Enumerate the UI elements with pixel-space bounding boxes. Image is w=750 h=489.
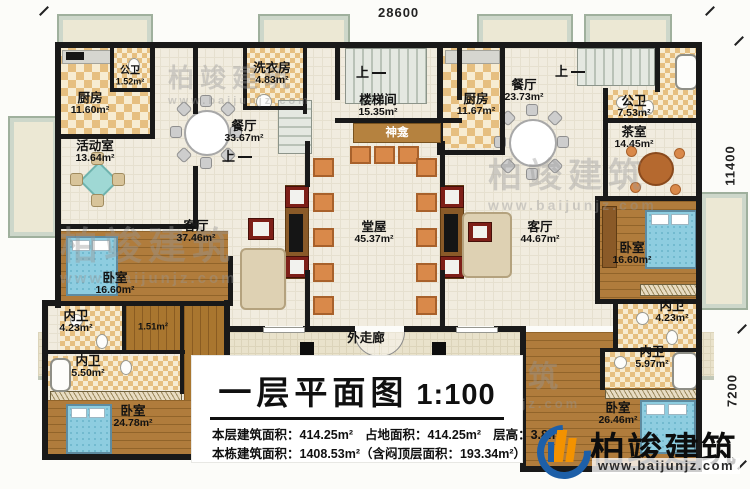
dimension-right-lower: 7200 [725,361,740,421]
altar-table [285,186,309,208]
room-label-activity: 活动室13.64m² [75,139,114,165]
hall-chair [416,193,437,212]
brand-logo: 柏竣建筑 www.baijunjz.com [536,416,748,480]
altar-table [440,186,464,208]
stairs-right [577,48,655,86]
wall [42,300,48,460]
room-label-main-hall: 堂屋45.37m² [354,220,393,246]
hall-chair [374,146,395,164]
wall [600,352,605,390]
activity-chair [112,173,125,186]
coffee-table [248,218,274,240]
room-label-bedroom-right-mid: 卧室16.60m² [612,241,651,267]
room-label-tea-room: 茶室14.45m² [614,125,653,151]
closet-hatch [605,389,697,399]
wall [335,42,340,100]
room-label-ensuite-right-upper: 内卫4.23m² [655,299,688,325]
room-label-ensuite-left-upper: 内卫4.23m² [59,309,92,335]
dimension-tick [734,36,744,46]
room-label-bath-public-right: 公卫7.53m² [617,94,650,120]
tea-stool [674,148,685,159]
wall [440,270,445,328]
plan-title-text: 一层平面图 [218,374,408,411]
plan-scale: 1:100 [416,379,495,411]
hall-chair [313,158,334,177]
wall [696,42,702,272]
bathtub [672,352,698,390]
wall [110,88,154,92]
sink [614,356,627,369]
plan-title: 一层平面图1:100 [210,366,503,420]
room-label-kitchen-left: 厨房11.60m² [71,91,110,117]
hall-chair [416,158,437,177]
wall [150,48,155,138]
room-label-bedroom-left-mid: 卧室16.60m² [95,271,134,297]
closet-hatch [640,284,698,296]
tea-stool [670,184,681,195]
plan-stats-line2: 本栋建筑面积：1408.53m²（含闷顶层面积：193.34m²） [212,445,522,464]
activity-chair [70,173,83,186]
dimension-top: 28600 [378,5,419,20]
room-label-closet-left: 1.51m² [138,323,168,334]
stairs-up-label: 上 [555,61,568,80]
room-label-kitchen-right: 厨房11.67m² [457,92,496,118]
bed [66,404,112,454]
stairs-up-label: 上 [356,62,369,81]
brand-logo-url: www.baijunjz.com [592,458,740,474]
floor-plan-page: 神龛 [0,0,750,489]
wall [595,201,600,301]
dimension-tick [737,324,747,334]
dining-chair [526,104,538,116]
room-label-dining-right: 餐厅23.73m² [504,78,543,104]
coffee-table [468,222,492,242]
glass-door [456,327,498,333]
dimension-tick [39,6,49,16]
room-label-shrine: 神龛 [354,124,440,142]
bathtub [50,358,71,392]
dimension-right-upper: 11400 [723,136,738,196]
toilet [96,334,108,349]
toilet [120,360,132,375]
room-label-ensuite-left-lower: 内卫5.50m² [71,354,104,380]
hall-chair [416,296,437,315]
hall-chair [350,146,371,164]
room-label-living-right: 客厅44.67m² [520,220,559,246]
dining-chair [557,136,569,148]
room-label-bedroom-left-bottom: 卧室24.78m² [113,404,152,430]
room-label-corridor: 外走廊 [347,331,385,345]
watermark: 柏竣建筑 www.baijunjz.com [488,148,657,213]
hall-chair [416,228,437,247]
bathtub [675,54,698,90]
terrace [8,116,59,238]
hall-chair [313,296,334,315]
plan-stats-line1: 本层建筑面积：414.25m²占地面积：414.25m²层高：3.8m [212,426,522,445]
hall-chair [313,263,334,282]
hall-chair [313,193,334,212]
brand-logo-icon [536,418,590,476]
stairs-up-label: 上 [222,146,235,165]
room-label-laundry: 洗衣房4.83m² [253,61,291,87]
stove [66,52,84,60]
dining-chair [170,126,182,138]
toilet [666,330,678,345]
sofa [240,248,286,310]
hall-chair [416,263,437,282]
hall-chair [313,228,334,247]
dining-chair [200,157,212,169]
room-label-living-left: 客厅37.46m² [176,219,215,245]
room-label-stair-hall: 楼梯间15.35m² [358,93,397,119]
wall [48,350,185,354]
tv [289,214,303,252]
glass-door [263,327,305,333]
wall [305,270,310,328]
wall [225,326,265,332]
sink [636,312,649,325]
wall [305,141,310,187]
shrine-band: 神龛 [353,123,441,143]
bed [645,210,697,269]
wall [404,326,458,332]
dimension-tick [705,6,715,16]
porch-column [300,342,314,355]
room-label-dining-left: 餐厅33.67m² [224,119,263,145]
wall [494,326,526,332]
stairs-up-arrow [372,72,386,74]
wall [613,304,618,350]
wall [110,48,114,92]
wall [180,350,184,394]
wall [655,48,660,92]
activity-chair [91,194,104,207]
stairs-up-arrow [238,156,252,158]
kitchen-counter [445,50,500,64]
stairs-up-arrow [571,71,585,73]
room-label-ensuite-right-lower: 内卫5.97m² [635,345,668,371]
tv [444,214,458,252]
title-block: 一层平面图1:100 本层建筑面积：414.25m²占地面积：414.25m²层… [192,356,522,462]
wall [122,306,126,352]
room-label-bath-small-left: 公卫1.52m² [116,65,145,86]
wall [180,306,184,352]
wall [48,301,230,306]
terrace [700,192,748,310]
